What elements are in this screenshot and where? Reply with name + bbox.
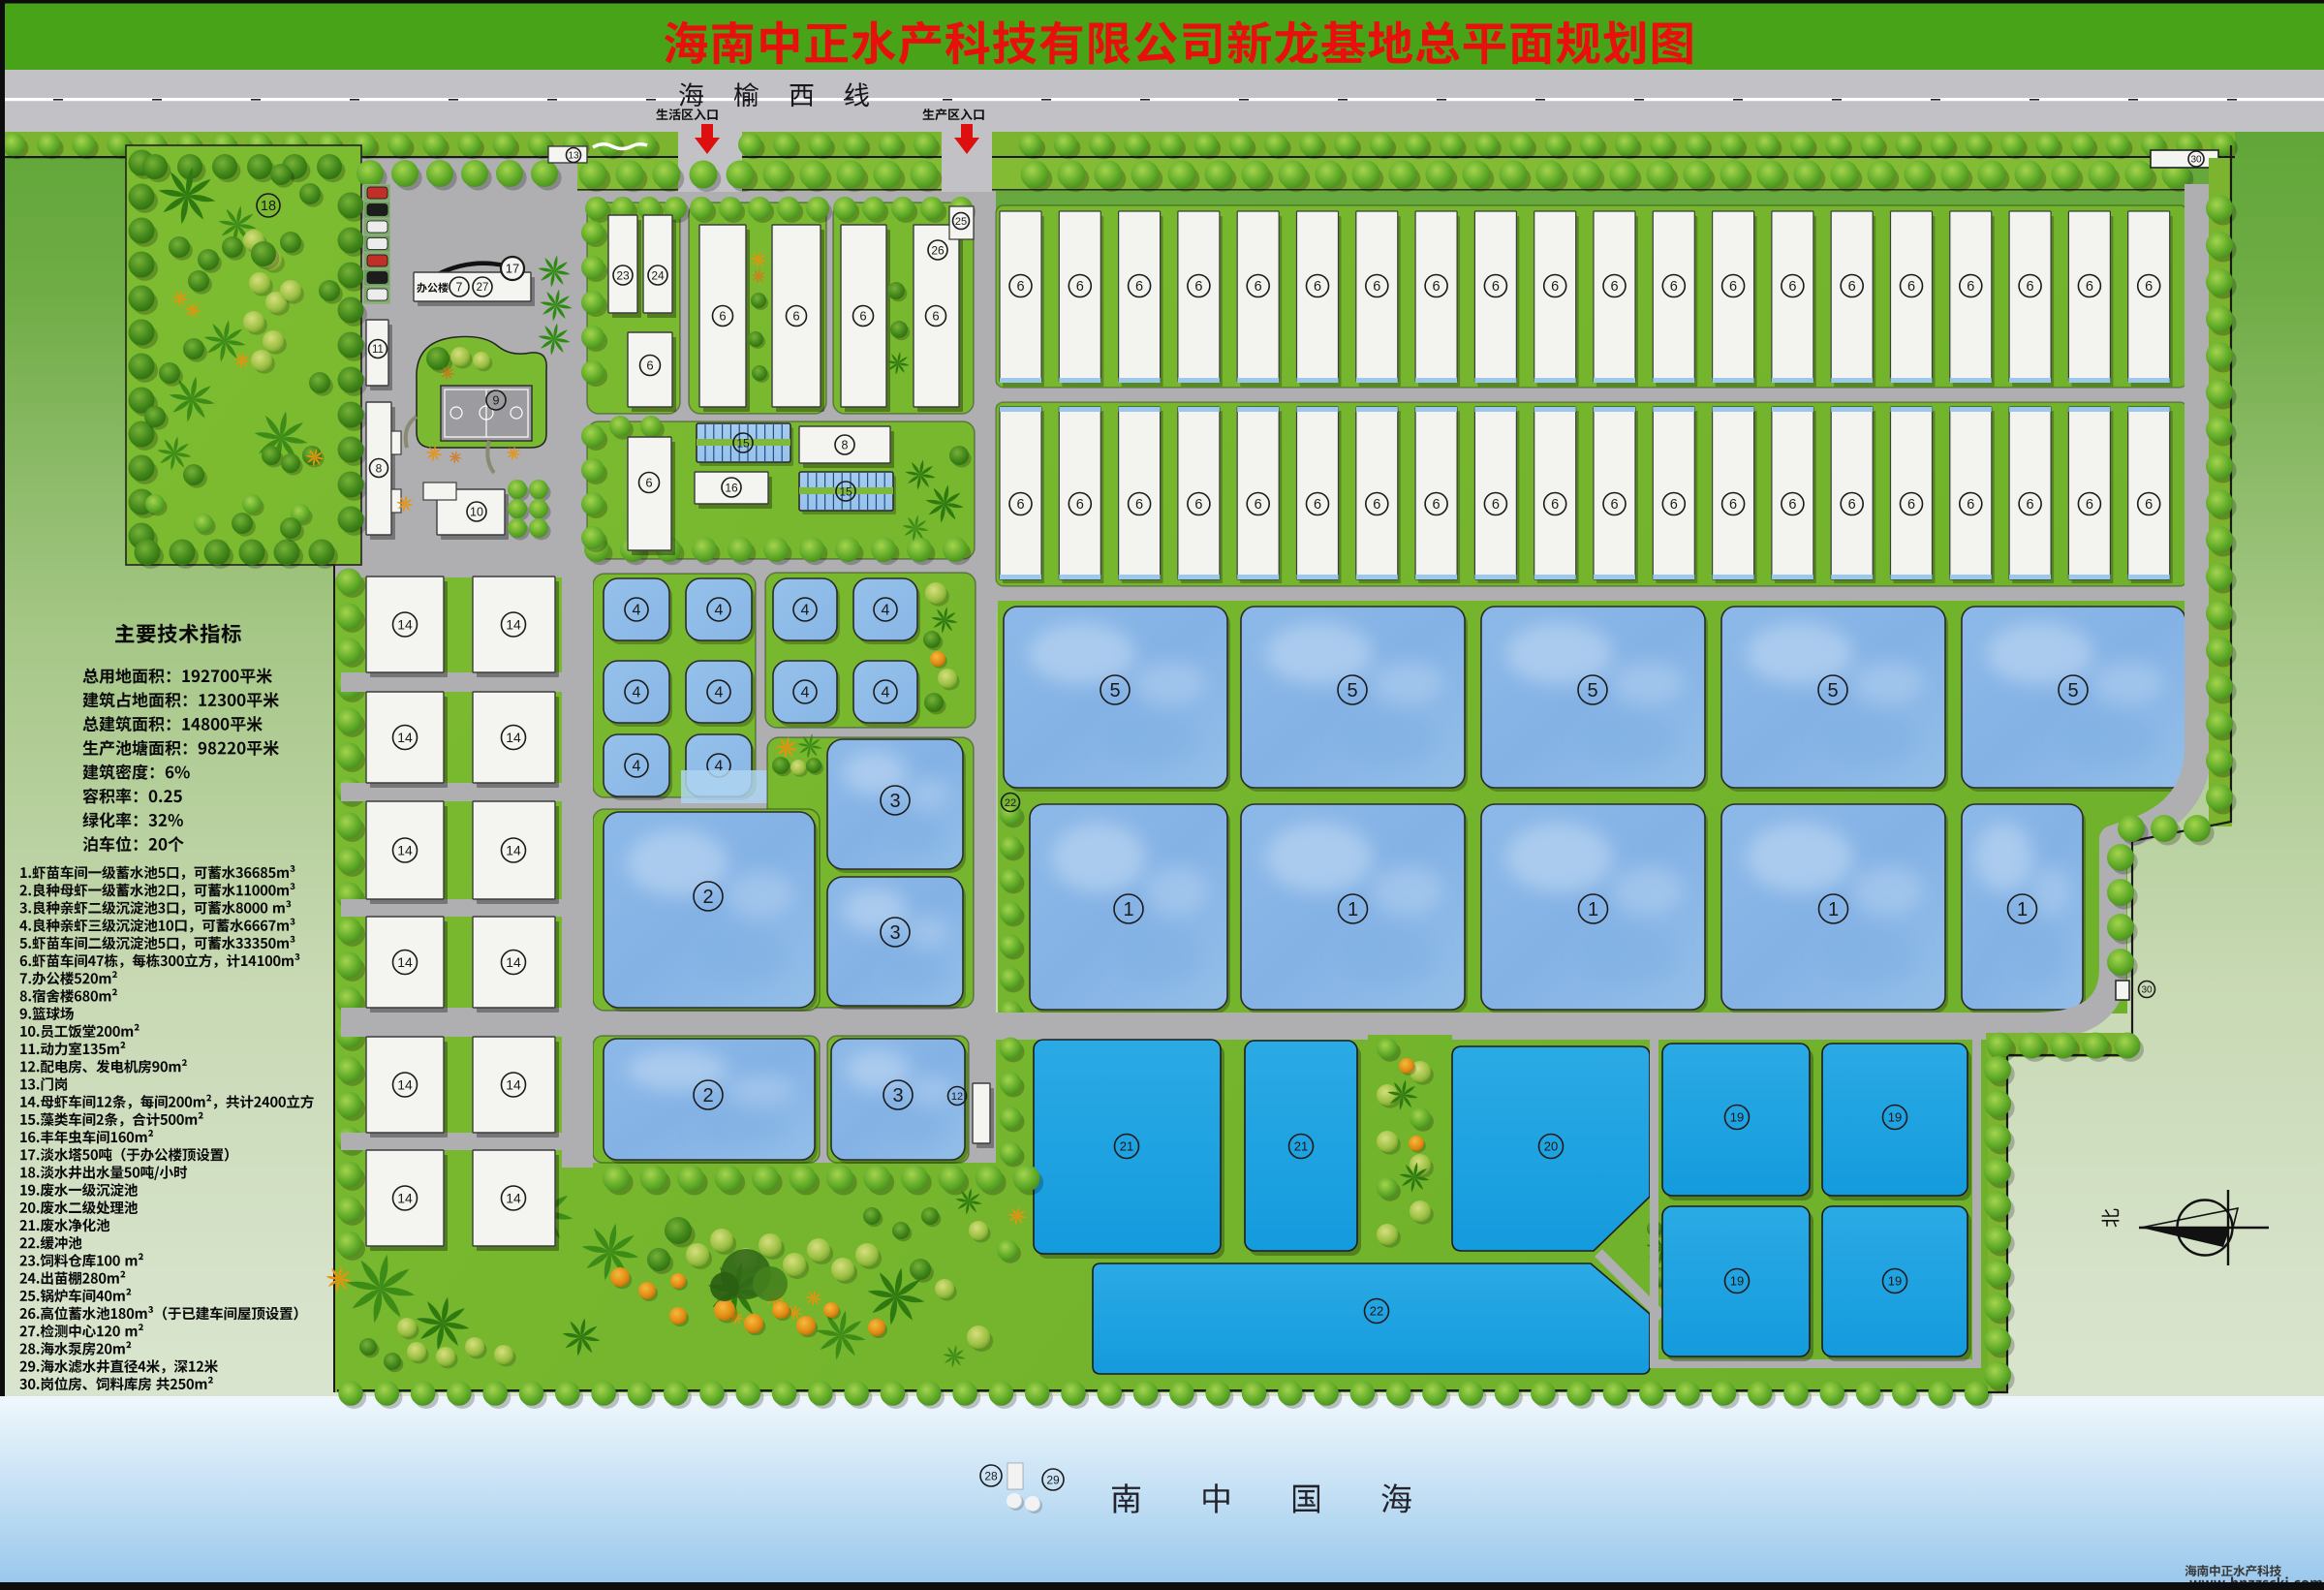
svg-text:6: 6 bbox=[646, 359, 653, 373]
svg-text:21: 21 bbox=[1120, 1139, 1133, 1154]
svg-text:14: 14 bbox=[397, 1190, 413, 1205]
svg-text:3: 3 bbox=[889, 922, 900, 944]
svg-text:6: 6 bbox=[1433, 497, 1441, 513]
svg-text:1: 1 bbox=[1348, 899, 1358, 920]
svg-text:6: 6 bbox=[1016, 497, 1024, 513]
svg-text:6: 6 bbox=[1492, 497, 1500, 513]
svg-text:6: 6 bbox=[645, 476, 652, 490]
svg-text:5: 5 bbox=[2067, 680, 2078, 701]
svg-text:6: 6 bbox=[1135, 279, 1143, 295]
svg-text:26: 26 bbox=[931, 243, 945, 257]
svg-text:7: 7 bbox=[456, 280, 463, 294]
svg-text:4: 4 bbox=[715, 685, 724, 701]
svg-text:6: 6 bbox=[1610, 497, 1618, 513]
svg-text:14: 14 bbox=[506, 1190, 521, 1205]
svg-text:19: 19 bbox=[1730, 1274, 1744, 1289]
svg-text:22: 22 bbox=[1370, 1304, 1383, 1319]
svg-text:4: 4 bbox=[633, 603, 641, 619]
svg-text:6: 6 bbox=[1076, 497, 1084, 513]
svg-text:25: 25 bbox=[955, 216, 967, 228]
svg-text:1: 1 bbox=[1588, 899, 1598, 920]
svg-text:15: 15 bbox=[839, 484, 852, 498]
svg-text:3: 3 bbox=[892, 1085, 903, 1107]
svg-text:22: 22 bbox=[1005, 797, 1016, 809]
svg-text:5: 5 bbox=[1587, 680, 1597, 701]
svg-text:20: 20 bbox=[1544, 1139, 1558, 1154]
svg-text:30: 30 bbox=[2141, 985, 2153, 996]
svg-text:6: 6 bbox=[1194, 279, 1202, 295]
svg-text:5: 5 bbox=[1827, 680, 1838, 701]
svg-text:21: 21 bbox=[1294, 1139, 1308, 1154]
svg-text:14: 14 bbox=[506, 842, 521, 857]
svg-text:6: 6 bbox=[1492, 279, 1500, 295]
svg-text:6: 6 bbox=[1967, 497, 1974, 513]
svg-text:6: 6 bbox=[1373, 497, 1380, 513]
svg-text:6: 6 bbox=[1314, 497, 1321, 513]
svg-text:11: 11 bbox=[372, 344, 384, 356]
svg-text:6: 6 bbox=[1373, 279, 1380, 295]
svg-text:6: 6 bbox=[2027, 279, 2034, 295]
svg-text:14: 14 bbox=[506, 616, 521, 632]
svg-text:12: 12 bbox=[951, 1091, 963, 1103]
svg-text:8: 8 bbox=[842, 438, 849, 452]
svg-text:6: 6 bbox=[1610, 279, 1618, 295]
svg-text:19: 19 bbox=[1888, 1274, 1902, 1289]
svg-text:14: 14 bbox=[397, 954, 413, 970]
svg-text:6: 6 bbox=[1135, 497, 1143, 513]
svg-text:6: 6 bbox=[1194, 497, 1202, 513]
svg-text:6: 6 bbox=[1076, 279, 1084, 295]
svg-text:4: 4 bbox=[715, 603, 724, 619]
svg-text:6: 6 bbox=[2145, 497, 2153, 513]
svg-text:6: 6 bbox=[1551, 497, 1559, 513]
svg-text:10: 10 bbox=[470, 505, 483, 518]
svg-text:6: 6 bbox=[932, 309, 939, 324]
svg-text:14: 14 bbox=[506, 730, 521, 745]
svg-text:6: 6 bbox=[1848, 279, 1856, 295]
svg-text:4: 4 bbox=[801, 685, 810, 701]
svg-text:30: 30 bbox=[2190, 155, 2202, 166]
svg-text:19: 19 bbox=[1730, 1110, 1744, 1125]
svg-text:5: 5 bbox=[1109, 680, 1120, 701]
svg-text:6: 6 bbox=[1670, 497, 1678, 513]
svg-text:6: 6 bbox=[1255, 497, 1262, 513]
svg-text:6: 6 bbox=[1967, 279, 1974, 295]
svg-text:6: 6 bbox=[2027, 497, 2034, 513]
svg-text:18: 18 bbox=[261, 199, 276, 214]
svg-text:4: 4 bbox=[633, 759, 641, 775]
svg-text:6: 6 bbox=[1907, 279, 1915, 295]
svg-text:6: 6 bbox=[2086, 279, 2093, 295]
svg-text:6: 6 bbox=[1907, 497, 1915, 513]
svg-text:24: 24 bbox=[651, 268, 665, 282]
svg-text:15: 15 bbox=[736, 436, 750, 450]
svg-text:9: 9 bbox=[493, 393, 500, 407]
svg-text:28: 28 bbox=[984, 1469, 998, 1482]
svg-text:6: 6 bbox=[1314, 279, 1321, 295]
svg-text:2: 2 bbox=[702, 1085, 713, 1107]
svg-text:5: 5 bbox=[1347, 680, 1357, 701]
svg-text:13: 13 bbox=[568, 151, 579, 162]
svg-text:23: 23 bbox=[616, 268, 630, 282]
svg-text:16: 16 bbox=[725, 481, 738, 494]
svg-text:27: 27 bbox=[477, 282, 489, 294]
svg-text:1: 1 bbox=[1123, 899, 1133, 920]
svg-text:6: 6 bbox=[1433, 279, 1441, 295]
svg-text:1: 1 bbox=[2017, 899, 2028, 920]
svg-text:6: 6 bbox=[1729, 279, 1737, 295]
svg-text:14: 14 bbox=[397, 730, 413, 745]
svg-text:6: 6 bbox=[1788, 497, 1796, 513]
svg-text:14: 14 bbox=[506, 954, 521, 970]
svg-text:4: 4 bbox=[801, 603, 810, 619]
svg-text:4: 4 bbox=[882, 685, 890, 701]
svg-text:6: 6 bbox=[1729, 497, 1737, 513]
svg-text:4: 4 bbox=[882, 603, 890, 619]
svg-text:4: 4 bbox=[633, 685, 641, 701]
svg-text:29: 29 bbox=[1046, 1473, 1060, 1486]
svg-text:2: 2 bbox=[702, 887, 713, 908]
svg-text:3: 3 bbox=[889, 791, 900, 812]
svg-text:6: 6 bbox=[1255, 279, 1262, 295]
svg-text:6: 6 bbox=[1551, 279, 1559, 295]
svg-text:6: 6 bbox=[1788, 279, 1796, 295]
svg-text:6: 6 bbox=[2145, 279, 2153, 295]
svg-text:6: 6 bbox=[1016, 279, 1024, 295]
svg-text:1: 1 bbox=[1828, 899, 1839, 920]
svg-text:6: 6 bbox=[2086, 497, 2093, 513]
svg-text:6: 6 bbox=[719, 309, 726, 324]
svg-text:8: 8 bbox=[376, 461, 383, 475]
svg-text:14: 14 bbox=[506, 1076, 521, 1092]
svg-text:14: 14 bbox=[397, 842, 413, 857]
svg-text:6: 6 bbox=[859, 309, 866, 324]
svg-text:6: 6 bbox=[1670, 279, 1678, 295]
svg-text:17: 17 bbox=[506, 262, 519, 276]
svg-text:19: 19 bbox=[1888, 1110, 1902, 1125]
svg-text:6: 6 bbox=[792, 309, 799, 324]
svg-text:6: 6 bbox=[1848, 497, 1856, 513]
svg-text:14: 14 bbox=[397, 616, 413, 632]
svg-text:14: 14 bbox=[397, 1076, 413, 1092]
